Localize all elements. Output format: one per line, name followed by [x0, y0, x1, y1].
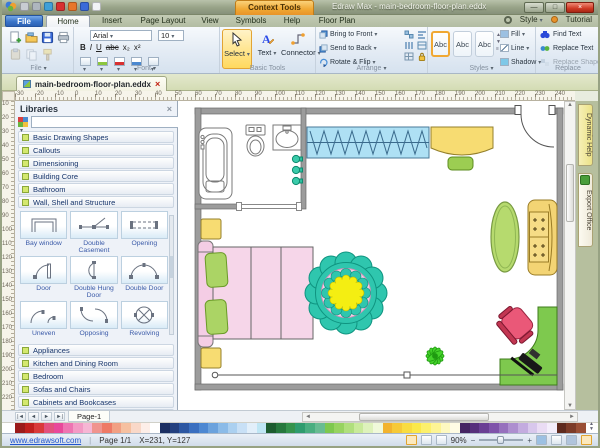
library-section-label: Callouts — [33, 146, 60, 155]
pillow — [205, 252, 228, 287]
lock-icon[interactable] — [417, 52, 427, 61]
library-section-label: Bathroom — [33, 185, 66, 194]
library-section[interactable]: Building Core — [18, 170, 174, 182]
redo-icon[interactable] — [32, 2, 41, 11]
ruler-number: 100 — [275, 91, 295, 100]
double-hung-door-icon — [77, 259, 111, 281]
sliding-door[interactable] — [239, 205, 301, 209]
zoom-out-button[interactable]: − — [471, 436, 476, 445]
title-bar: Context Tools Edraw Max - main-bedroom-f… — [2, 0, 598, 15]
document-close-icon[interactable]: × — [155, 80, 160, 88]
layer-icon[interactable] — [417, 41, 427, 50]
color-swatch[interactable] — [257, 423, 267, 433]
color-swatch[interactable] — [218, 423, 228, 433]
select-tool-button[interactable]: Select — [222, 29, 252, 69]
last-page-button[interactable]: ►| — [54, 412, 65, 421]
color-swatch[interactable] — [547, 423, 557, 433]
ruler-number: 0 — [75, 91, 95, 100]
ruler-number: 90 — [255, 91, 275, 100]
text-tool-button[interactable]: A Text — [254, 29, 280, 69]
style-menu[interactable]: Style — [520, 15, 543, 24]
document-tab-strip: main-bedroom-floor-plan.eddx × — [2, 74, 598, 91]
library-section-label: Basic Drawing Shapes — [33, 133, 108, 142]
group-label-file: File — [4, 65, 73, 72]
door-icon — [27, 259, 61, 281]
edrawsoft-link[interactable]: www.edrawsoft.com — [10, 436, 81, 445]
ruler-number: 210 — [2, 381, 14, 395]
shape-revolving-door[interactable]: Revolving — [121, 301, 168, 344]
library-section[interactable]: Kitchen and Dining Room — [18, 357, 174, 369]
library-section[interactable]: Wall, Shell and Structure — [18, 196, 174, 208]
library-section-label: Bedroom — [33, 372, 63, 381]
horizontal-ruler[interactable]: -30-20-100102030405060708090100110120130… — [15, 91, 575, 101]
library-section-label: Kitchen and Dining Room — [33, 359, 118, 368]
color-swatch[interactable] — [160, 423, 170, 433]
color-swatch[interactable] — [325, 423, 335, 433]
color-swatch[interactable] — [373, 423, 383, 433]
fullscreen-icon[interactable] — [581, 435, 592, 445]
ruler-number: 220 — [2, 395, 14, 409]
ruler-number: 180 — [2, 339, 14, 353]
color-swatch[interactable] — [102, 423, 112, 433]
pillow — [205, 299, 228, 334]
color-swatch[interactable] — [383, 423, 393, 433]
libraries-title: Libraries — [20, 104, 58, 114]
ruler-number: 50 — [2, 157, 14, 171]
vertical-ruler[interactable]: 1020304050607080901001101201301401501601… — [2, 101, 15, 410]
app-logo-icon[interactable] — [5, 1, 17, 12]
color-swatch[interactable] — [460, 423, 470, 433]
ruler-number: 160 — [395, 91, 415, 100]
library-section-label: Dimensioning — [33, 159, 78, 168]
send-back-icon — [319, 44, 328, 53]
style-preview-3[interactable]: Abc — [475, 31, 494, 57]
save-icon[interactable] — [44, 2, 53, 11]
prev-page-button[interactable]: ◄ — [28, 412, 39, 421]
color-swatch[interactable] — [170, 423, 180, 433]
library-section-icon — [22, 386, 29, 393]
document-tab-label: main-bedroom-floor-plan.eddx — [35, 80, 151, 89]
tab-view[interactable]: View — [194, 15, 226, 27]
ruler-number: 140 — [355, 91, 375, 100]
ruler-number: 190 — [455, 91, 475, 100]
word-export-icon[interactable] — [80, 2, 89, 11]
style-preview-1[interactable]: Abc — [431, 31, 450, 57]
libraries-close-icon[interactable] — [167, 104, 172, 114]
color-swatch[interactable] — [199, 423, 209, 433]
color-swatch[interactable] — [189, 423, 199, 433]
nightstand-bottom[interactable] — [201, 348, 221, 368]
closet[interactable] — [307, 127, 429, 158]
ruler-number: 170 — [415, 91, 435, 100]
color-swatch[interactable] — [470, 423, 480, 433]
group-styles: Abc Abc Abc ▲▼≡ Fill Line Shadow Styles — [428, 27, 536, 73]
style-preview-2[interactable]: Abc — [453, 31, 472, 57]
library-section-label: Appliances — [33, 346, 70, 355]
color-swatch[interactable] — [34, 423, 44, 433]
ruler-number: -30 — [15, 91, 35, 100]
ruler-number: 170 — [2, 325, 14, 339]
color-swatch[interactable] — [295, 423, 305, 433]
page-view-icon[interactable] — [421, 435, 432, 445]
nightstand-top[interactable] — [201, 219, 221, 239]
close-button[interactable]: × — [566, 2, 594, 13]
page-bar: |◄ ◄ ► ►| Page-1 ◄ ► — [2, 410, 598, 422]
color-swatch[interactable] — [63, 423, 73, 433]
ruler-number: 140 — [2, 283, 14, 297]
bed[interactable] — [198, 241, 313, 347]
color-swatch[interactable] — [150, 423, 160, 433]
flower-rug[interactable] — [305, 252, 387, 334]
next-page-button[interactable]: ► — [41, 412, 52, 421]
tutorial-link[interactable]: Tutorial — [566, 15, 592, 24]
print-icon[interactable] — [56, 30, 71, 45]
tab-page-layout[interactable]: Page Layout — [134, 15, 192, 27]
dynamic-help-tab[interactable]: Dynamic Help — [578, 104, 593, 166]
group-label-replace: Replace — [536, 65, 600, 72]
ruler-number: 240 — [555, 91, 575, 100]
ruler-number: 180 — [435, 91, 455, 100]
color-swatch[interactable] — [576, 423, 586, 433]
color-palette — [2, 422, 598, 433]
ppt-export-icon[interactable] — [68, 2, 77, 11]
shape-uneven-door[interactable]: Uneven — [20, 301, 67, 344]
horizontal-scrollbar[interactable]: ◄ ► — [302, 412, 578, 422]
ruler-number: 70 — [215, 91, 235, 100]
color-swatch[interactable] — [441, 423, 451, 433]
ribbon: File Arial 10 B I U abc x₂ x² Font — [2, 27, 598, 74]
zoom-level: 90% — [451, 436, 467, 445]
uneven-door-icon — [27, 304, 61, 326]
window-title: Edraw Max - main-bedroom-floor-plan.eddx — [332, 2, 486, 11]
bring-to-front-label: Bring to Front — [330, 31, 377, 38]
minimize-button[interactable]: — — [524, 2, 544, 13]
scroll-right-icon[interactable]: ► — [569, 413, 575, 421]
tab-help[interactable]: Help — [276, 15, 308, 27]
subscript-button[interactable]: x₂ — [123, 43, 130, 52]
bold-button[interactable]: B — [80, 43, 86, 52]
color-swatch[interactable] — [44, 423, 54, 433]
document-tab[interactable]: main-bedroom-floor-plan.eddx × — [16, 76, 167, 91]
underline-button[interactable]: U — [96, 43, 102, 52]
color-swatch[interactable] — [208, 423, 218, 433]
toilet[interactable] — [246, 125, 265, 156]
group-label-basic-tools: Basic Tools — [220, 65, 315, 72]
status-bar: www.edrawsoft.com | Page 1/1 X=231, Y=12… — [2, 433, 598, 448]
ruler-number: 80 — [2, 199, 14, 213]
shape-double-hung-door[interactable]: Double Hung Door — [70, 256, 117, 301]
sofa[interactable] — [528, 200, 557, 275]
drawing-canvas[interactable] — [178, 101, 564, 410]
library-section[interactable]: Sofas and Chairs — [18, 383, 174, 395]
ruler-number: 100 — [2, 227, 14, 241]
cursor-icon — [230, 32, 244, 47]
tab-floor-plan[interactable]: Floor Plan — [310, 15, 364, 27]
ruler-number: 210 — [495, 91, 515, 100]
library-section-label: Wall, Shell and Structure — [33, 198, 115, 207]
towel-hooks[interactable] — [292, 155, 302, 184]
ruler-number: 110 — [2, 241, 14, 255]
maximize-button[interactable]: □ — [545, 2, 565, 13]
shape-opposing-doors[interactable]: Opposing — [70, 301, 117, 344]
color-swatch[interactable] — [334, 423, 344, 433]
dresser[interactable] — [431, 127, 493, 155]
page-tab[interactable]: Page-1 — [68, 411, 110, 422]
color-swatch[interactable] — [557, 423, 567, 433]
magnifier-icon[interactable] — [551, 435, 562, 445]
fill-icon — [500, 30, 509, 38]
library-section[interactable]: Callouts — [18, 144, 174, 156]
pdf-export-icon[interactable] — [56, 2, 65, 11]
tutorial-icon — [551, 16, 558, 23]
ruler-number: 60 — [195, 91, 215, 100]
line-icon — [500, 44, 509, 52]
send-to-back-button[interactable]: Send to Back — [319, 44, 377, 53]
color-swatch[interactable] — [121, 423, 131, 433]
stool[interactable] — [448, 157, 473, 170]
library-section-icon — [22, 373, 29, 380]
library-section-icon — [22, 186, 29, 193]
context-tools-tab[interactable]: Context Tools — [235, 0, 314, 15]
color-swatch[interactable] — [112, 423, 122, 433]
shape-label: Double Casement — [70, 239, 117, 256]
library-section-icon — [22, 360, 29, 367]
tab-insert[interactable]: Insert — [92, 15, 132, 27]
shape-bay-window[interactable]: Bay window — [20, 211, 67, 256]
print-preview-icon[interactable] — [436, 435, 447, 445]
fill-menu[interactable]: Fill — [500, 30, 525, 38]
sink[interactable] — [273, 125, 301, 150]
first-page-button[interactable]: |◄ — [15, 412, 26, 421]
color-swatch[interactable] — [15, 423, 25, 433]
shape-opening[interactable]: Opening — [121, 211, 168, 256]
revolving-door-icon — [127, 304, 161, 326]
library-section-icon — [22, 173, 29, 180]
door-jamb — [515, 106, 521, 115]
superscript-button[interactable]: x² — [134, 43, 141, 52]
library-section-icon — [22, 147, 29, 154]
library-section-icon — [22, 347, 29, 354]
color-swatch[interactable] — [247, 423, 257, 433]
oval-rug[interactable] — [491, 202, 519, 272]
color-swatch[interactable] — [83, 423, 93, 433]
color-swatch[interactable] — [141, 423, 151, 433]
library-section[interactable]: Dimensioning — [18, 157, 174, 169]
shape-label: Revolving — [121, 329, 168, 344]
ruler-number: 20 — [2, 115, 14, 129]
library-section[interactable]: Appliances — [18, 344, 174, 356]
ruler-number: 60 — [2, 171, 14, 185]
color-swatch[interactable] — [344, 423, 354, 433]
ruler-number: -20 — [35, 91, 55, 100]
tab-symbols[interactable]: Symbols — [228, 15, 274, 27]
gear-icon — [504, 16, 512, 24]
font-size-select[interactable]: 10 — [158, 30, 184, 41]
bring-to-front-button[interactable]: Bring to Front — [319, 30, 377, 39]
library-menu-icon[interactable] — [18, 117, 28, 127]
grid-icon[interactable] — [404, 52, 414, 61]
italic-button[interactable]: I — [90, 43, 92, 52]
library-section[interactable]: Bedroom — [18, 370, 174, 382]
double-casement-icon — [77, 214, 111, 236]
ruler-number: 90 — [2, 213, 14, 227]
library-section-icon — [22, 399, 29, 406]
ribbon-tab-bar: File Home Insert Page Layout View Symbol… — [2, 15, 598, 27]
entry-door-swing[interactable] — [521, 114, 554, 147]
shape-double-door[interactable]: Double Door — [121, 256, 168, 301]
bathtub[interactable] — [199, 128, 232, 199]
tab-file[interactable]: File — [5, 15, 43, 27]
new-document-icon[interactable] — [8, 30, 23, 45]
zoom-slider[interactable] — [479, 439, 523, 441]
color-swatch[interactable] — [518, 423, 528, 433]
color-swatch[interactable] — [566, 423, 576, 433]
new-doc-icon[interactable] — [92, 2, 101, 11]
ruler-number: 150 — [375, 91, 395, 100]
connector-tool-button[interactable]: Connector — [281, 29, 315, 69]
floor-plan — [178, 101, 564, 410]
color-swatch[interactable] — [450, 423, 460, 433]
ruler-number: 20 — [115, 91, 135, 100]
ruler-number: 130 — [335, 91, 355, 100]
palette-scroll-arrows[interactable]: ▲▼ — [586, 422, 597, 433]
bring-front-icon — [319, 30, 328, 39]
shape-double-casement[interactable]: Double Casement — [70, 211, 117, 256]
group-replace: Find Text Replace Text Replace Shape Rep… — [536, 27, 600, 73]
color-swatch[interactable] — [354, 423, 364, 433]
library-section[interactable]: Bathroom — [18, 183, 174, 195]
sliding-door-handle — [237, 203, 242, 211]
binoculars-icon — [540, 30, 550, 39]
ruler-number: 120 — [2, 255, 14, 269]
document-icon — [23, 80, 31, 88]
ruler-number: 80 — [235, 91, 255, 100]
color-swatch[interactable] — [228, 423, 238, 433]
vertical-scrollbar[interactable]: ▲▼ — [564, 101, 576, 410]
color-swatch[interactable] — [479, 423, 489, 433]
shape-label: Door — [20, 284, 67, 299]
replace-text-button[interactable]: Replace Text — [540, 44, 593, 53]
office-chair[interactable] — [493, 302, 538, 348]
ruler-number: 150 — [2, 297, 14, 311]
font-family-select[interactable]: Arial — [90, 30, 152, 41]
color-swatch[interactable] — [499, 423, 509, 433]
ruler-number: 30 — [135, 91, 155, 100]
color-swatch[interactable] — [25, 423, 35, 433]
group-label-font: Font — [74, 65, 219, 72]
align-icon[interactable] — [417, 30, 427, 39]
color-swatch[interactable] — [305, 423, 315, 433]
plant[interactable] — [426, 347, 445, 366]
shape-label: Uneven — [20, 329, 67, 344]
save-file-icon[interactable] — [40, 30, 55, 45]
ruler-number: -10 — [55, 91, 75, 100]
text-tool-icon: A — [260, 31, 274, 46]
color-swatch[interactable] — [179, 423, 189, 433]
library-section-icon — [22, 134, 29, 141]
connector-icon — [290, 31, 306, 46]
color-swatch[interactable] — [431, 423, 441, 433]
select-tool-label: Select — [223, 49, 251, 58]
opening-icon — [127, 214, 161, 236]
color-swatch[interactable] — [54, 423, 64, 433]
color-swatch[interactable] — [286, 423, 296, 433]
ruler-number: 230 — [535, 91, 555, 100]
color-swatch[interactable] — [237, 423, 247, 433]
zoom-slider-knob[interactable] — [497, 436, 504, 444]
right-panel-strip: Dynamic Help Export Office — [576, 101, 600, 410]
vertical-scrollbar-thumb[interactable] — [566, 164, 574, 222]
zoom-in-button[interactable]: + — [527, 436, 532, 445]
ruler-number: 120 — [315, 91, 335, 100]
color-swatch[interactable] — [528, 423, 538, 433]
color-swatch[interactable] — [131, 423, 141, 433]
color-swatch[interactable] — [537, 423, 547, 433]
color-swatch[interactable] — [266, 423, 276, 433]
copy-icon[interactable] — [24, 47, 39, 62]
group-icon[interactable] — [404, 30, 414, 39]
shape-door[interactable]: Door — [20, 256, 67, 301]
distribute-icon[interactable] — [404, 41, 414, 50]
shape-label: Bay window — [20, 239, 67, 254]
horizontal-scrollbar-thumb[interactable] — [359, 413, 489, 421]
tab-home[interactable]: Home — [46, 15, 90, 27]
undo-icon[interactable] — [20, 2, 29, 11]
color-swatch[interactable] — [363, 423, 373, 433]
find-text-button[interactable]: Find Text — [540, 30, 581, 39]
color-swatch[interactable] — [276, 423, 286, 433]
shape-grid-scrollbar[interactable] — [169, 215, 174, 335]
send-to-back-label: Send to Back — [330, 45, 377, 52]
format-painter-icon[interactable] — [40, 47, 55, 62]
ruler-number: 70 — [2, 185, 14, 199]
ruler-number: 40 — [2, 143, 14, 157]
group-label-styles: Styles — [428, 65, 535, 72]
libraries-panel: Libraries → Basic Drawing Shapes Callout… — [15, 101, 178, 410]
color-swatch[interactable] — [92, 423, 102, 433]
color-swatch[interactable] — [315, 423, 325, 433]
color-swatch[interactable] — [421, 423, 431, 433]
shape-label: Double Hung Door — [70, 284, 117, 301]
color-swatch[interactable] — [73, 423, 83, 433]
door-jamb — [549, 106, 555, 115]
open-icon[interactable] — [24, 30, 39, 45]
shape-label: Opening — [121, 239, 168, 254]
ruler-number: 110 — [295, 91, 315, 100]
line-menu[interactable]: Line — [500, 44, 529, 52]
fit-page-icon[interactable] — [536, 435, 547, 445]
library-section[interactable]: Basic Drawing Shapes — [18, 131, 174, 143]
color-swatch[interactable] — [489, 423, 499, 433]
color-swatch[interactable] — [392, 423, 402, 433]
group-label-arrange: Arrange — [316, 65, 427, 72]
normal-view-icon[interactable] — [406, 435, 417, 445]
group-file: File — [4, 27, 74, 73]
color-swatch[interactable] — [402, 423, 412, 433]
strikethrough-button[interactable]: abc — [106, 43, 119, 52]
fill-label: Fill — [511, 31, 525, 38]
color-swatch[interactable] — [508, 423, 518, 433]
ruler-number: 40 — [155, 91, 175, 100]
scroll-left-icon[interactable]: ◄ — [305, 413, 311, 421]
pan-icon[interactable] — [566, 435, 577, 445]
library-section-icon — [22, 160, 29, 167]
paste-icon[interactable] — [8, 47, 23, 62]
color-swatch[interactable] — [412, 423, 422, 433]
quick-access-toolbar — [5, 1, 101, 12]
app-window: Context Tools Edraw Max - main-bedroom-f… — [0, 0, 600, 448]
library-section[interactable]: Cabinets and Bookcases — [18, 396, 174, 408]
